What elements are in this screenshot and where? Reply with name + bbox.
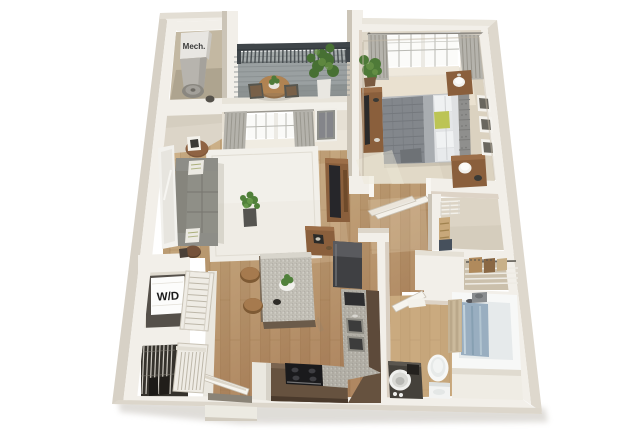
- svg-text:Mech.: Mech.: [183, 42, 206, 51]
- svg-text:W/D: W/D: [157, 290, 180, 303]
